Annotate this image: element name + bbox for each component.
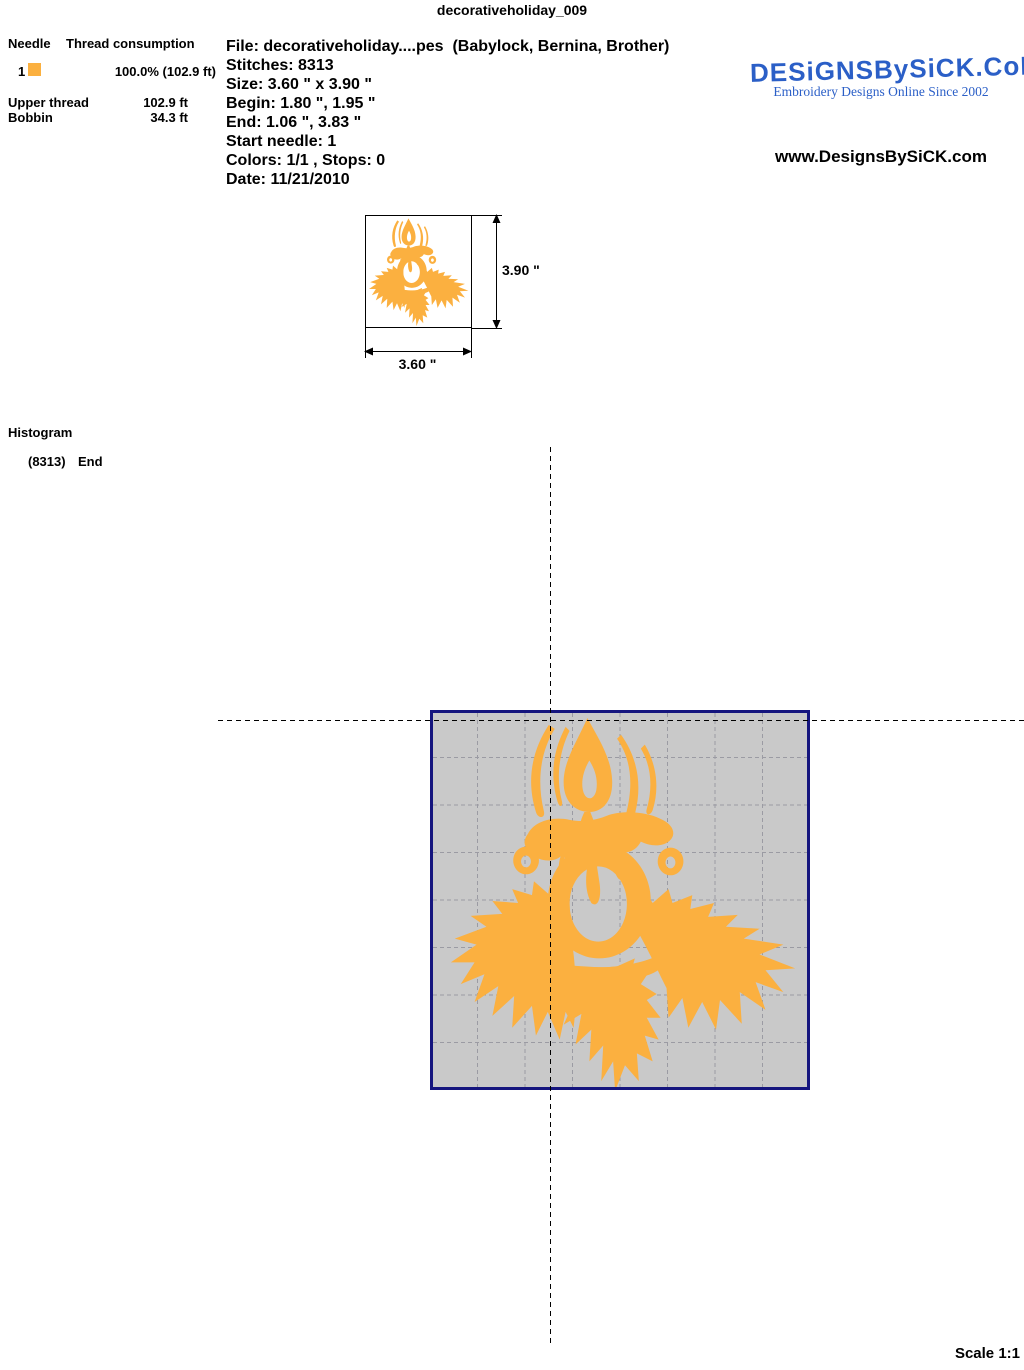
histogram-title: Histogram: [8, 425, 72, 440]
design-thumbnail-image: [369, 217, 469, 327]
thread-color-swatch: [28, 63, 41, 76]
thread-row-consumption: 100.0% (102.9 ft): [100, 64, 216, 79]
histogram-entry-label: End: [78, 454, 103, 469]
file-info-date: Date: 11/21/2010: [226, 170, 350, 189]
bobbin-label: Bobbin: [8, 110, 53, 125]
thread-table-header-consumption: Thread consumption: [66, 36, 195, 51]
height-dimension-label: 3.90 ": [502, 262, 540, 278]
brand-logo-text: DESiGNSBySiCK.CoM: [750, 50, 1024, 88]
width-dimension-label: 3.60 ": [380, 356, 455, 372]
brand-logo: DESiGNSBySiCK.CoM Embroidery Designs Onl…: [750, 54, 1012, 100]
file-info-begin: Begin: 1.80 ", 1.95 ": [226, 94, 375, 113]
brand-website: www.DesignsBySiCK.com: [750, 147, 1012, 167]
thread-table-header-needle: Needle: [8, 36, 51, 51]
crosshair-vertical-line: [550, 447, 551, 1347]
file-info-stitches: Stitches: 8313: [226, 56, 334, 75]
page-title: decorativeholiday_009: [0, 2, 1024, 18]
design-thumbnail-box: [365, 215, 472, 328]
file-info-file: File: decorativeholiday....pes (Babylock…: [226, 37, 669, 56]
histogram-entry-count: (8313): [28, 454, 66, 469]
design-preview-image: [450, 713, 798, 1090]
thread-row-needle-number: 1: [18, 64, 25, 79]
bobbin-value: 34.3 ft: [120, 110, 188, 125]
hoop-preview: [430, 710, 810, 1090]
hoop-grid-area: [433, 713, 807, 1087]
file-info-size: Size: 3.60 " x 3.90 ": [226, 75, 372, 94]
scale-label: Scale 1:1: [920, 1345, 1020, 1362]
file-info-end: End: 1.06 ", 3.83 ": [226, 113, 361, 132]
upper-thread-value: 102.9 ft: [120, 95, 188, 110]
upper-thread-label: Upper thread: [8, 95, 89, 110]
file-info-colors: Colors: 1/1 , Stops: 0: [226, 151, 385, 170]
crosshair-horizontal-line: [218, 720, 1024, 721]
file-info-start-needle: Start needle: 1: [226, 132, 336, 151]
print-preview-page: decorativeholiday_009 Needle Thread cons…: [0, 0, 1024, 1370]
